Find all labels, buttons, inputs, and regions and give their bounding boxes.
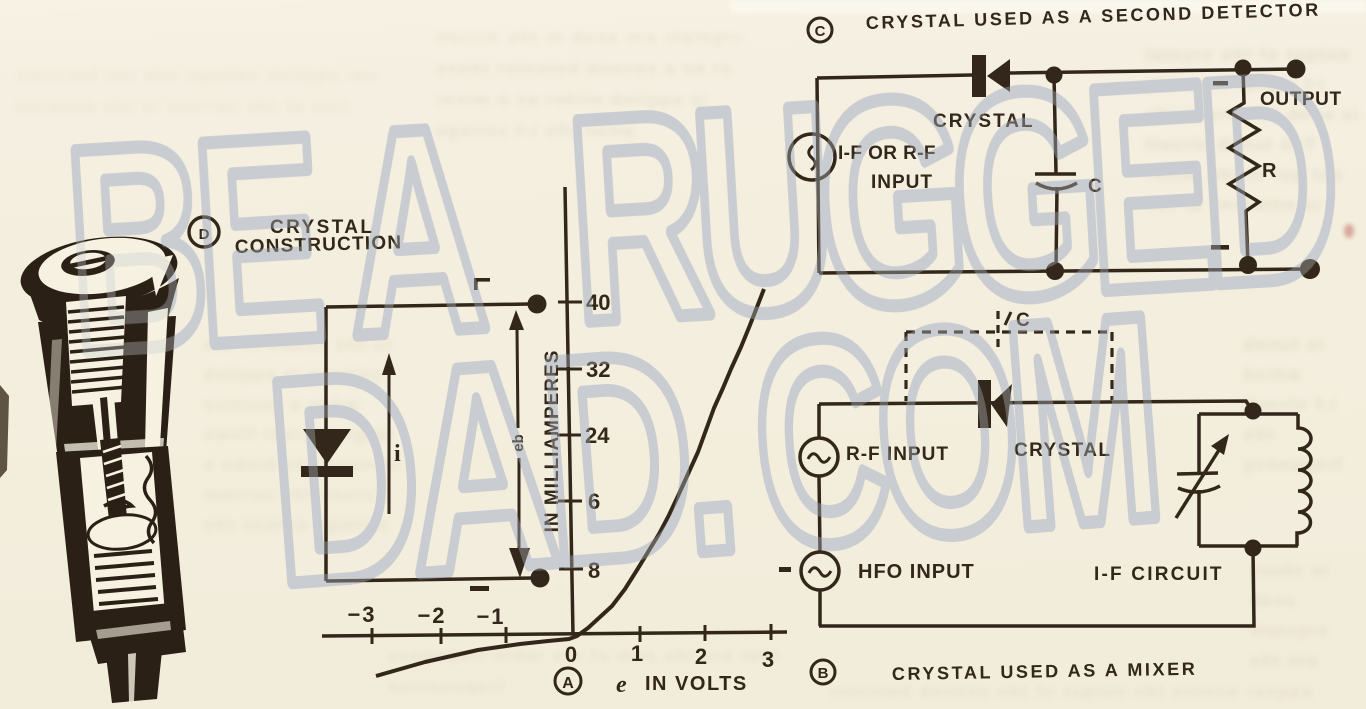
svg-text:DAD.: DAD. bbox=[258, 286, 737, 646]
svg-text:COM: COM bbox=[743, 253, 1162, 609]
